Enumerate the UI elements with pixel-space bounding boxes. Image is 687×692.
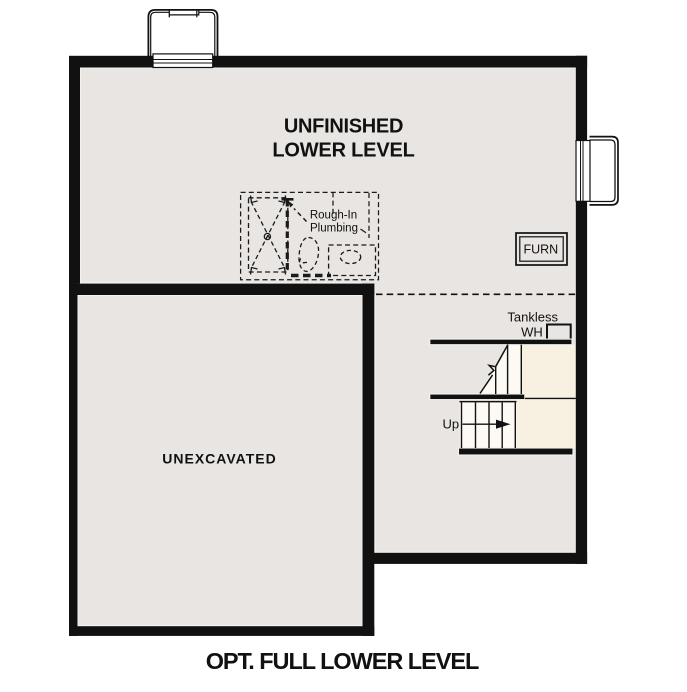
svg-text:OPT. FULL LOWER LEVEL: OPT. FULL LOWER LEVEL: [206, 648, 479, 674]
svg-text:Up: Up: [442, 417, 459, 432]
svg-text:Plumbing: Plumbing: [310, 223, 358, 235]
svg-text:WH: WH: [521, 325, 543, 340]
svg-text:UNFINISHED: UNFINISHED: [284, 115, 403, 137]
svg-text:FURN: FURN: [523, 242, 558, 256]
svg-text:UNEXCAVATED: UNEXCAVATED: [162, 451, 276, 467]
svg-text:LOWER LEVEL: LOWER LEVEL: [272, 139, 414, 161]
svg-text:Tankless: Tankless: [507, 309, 558, 324]
svg-text:Rough-In: Rough-In: [310, 209, 357, 221]
